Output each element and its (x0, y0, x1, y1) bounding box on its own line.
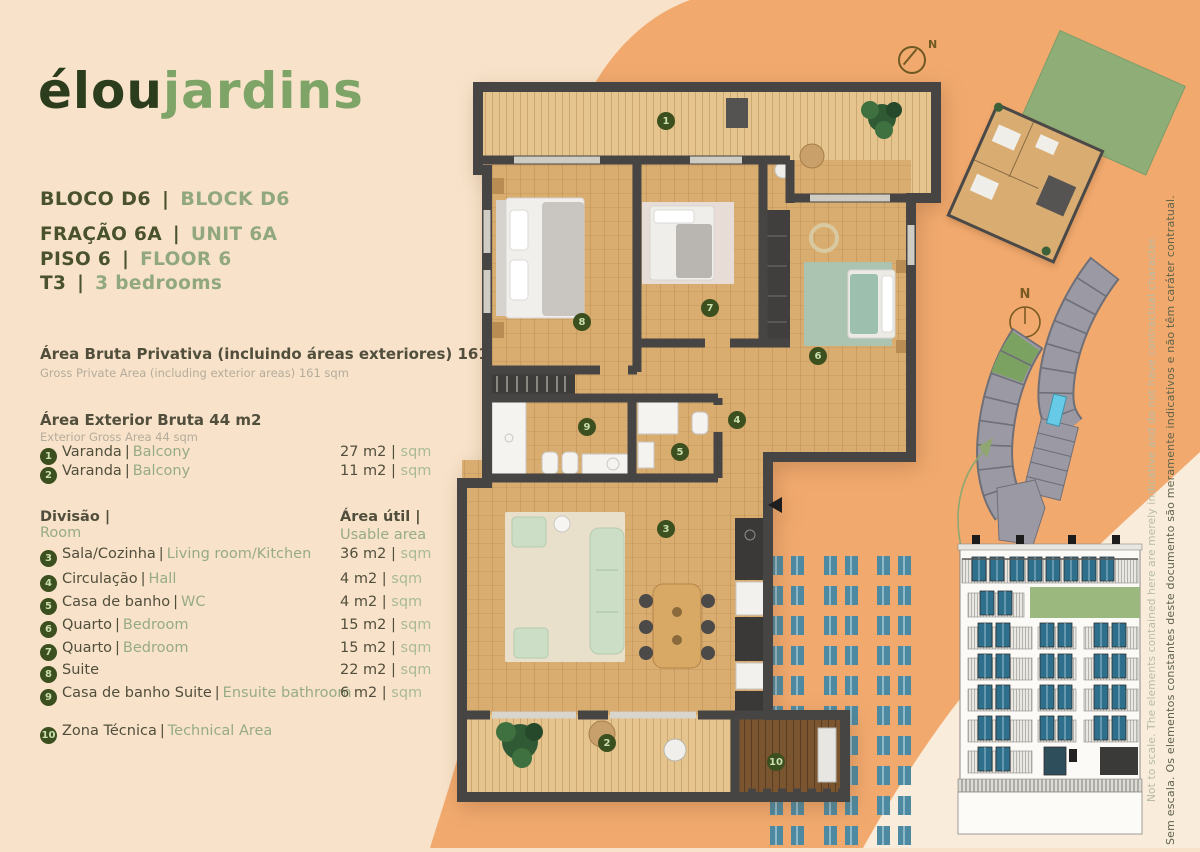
item-number-badge: 8 (40, 666, 57, 683)
separator: | (391, 546, 396, 562)
room-name-pt: Quarto (62, 640, 112, 656)
separator: | (212, 685, 223, 701)
separator: | (382, 594, 387, 610)
separator: | (382, 571, 387, 587)
separator: | (122, 444, 133, 460)
room-name-en: Hall (149, 571, 177, 587)
type-pt: T3 (40, 273, 66, 294)
bed-shape (970, 174, 999, 200)
room-name-pt: Suite (62, 662, 99, 678)
separator: | (138, 571, 149, 587)
separator (99, 662, 105, 678)
dining-chair (701, 620, 715, 634)
fence-strip (958, 779, 1142, 792)
disclaimer-pt: Sem escala. Os elementos constantes dest… (1164, 300, 1177, 845)
table-row: 9Casa de banho Suite|Ensuite bathroom6 m… (40, 685, 470, 705)
item-number-badge: 3 (40, 550, 57, 567)
separator: | (118, 249, 133, 270)
bedroom7-blanket (676, 224, 712, 278)
unit-pt: FRAÇÃO 6A (40, 224, 162, 245)
room-area-unit: sqm (401, 662, 432, 678)
dining-chair (639, 594, 653, 608)
separator: | (158, 188, 173, 210)
room-area: 36 m2 (340, 546, 386, 562)
separator: | (382, 685, 387, 701)
item-unit: sqm (401, 463, 432, 479)
vanity (582, 454, 628, 475)
gross-private-area-en: Gross Private Area (including exterior a… (40, 366, 349, 380)
item-number-badge: 4 (40, 575, 57, 592)
facade-window (770, 826, 783, 845)
dining-chair (701, 594, 715, 608)
exterior-area-pt: Área Exterior Bruta 44 m2 (40, 411, 261, 429)
room-name-pt: Zona Técnica (62, 723, 157, 739)
item-number-badge: 5 (40, 598, 57, 615)
roof-plan-thumbnail (985, 40, 1150, 255)
facade-window (898, 826, 911, 845)
item-unit: sqm (401, 444, 432, 460)
bidet (562, 452, 578, 474)
separator: | (156, 546, 167, 562)
exterior-area-en: Exterior Gross Area 44 sqm (40, 430, 198, 444)
dining-table (653, 584, 701, 668)
facade-window (791, 826, 804, 845)
exterior-item-row: 2Varanda|Balcony 11 m2 | sqm (40, 463, 470, 483)
bedroom7-pillow (654, 210, 694, 223)
table-row: 6Quarto|Bedroom15 m2 | sqm (40, 617, 470, 637)
sofa (590, 528, 624, 654)
north-label: N (1020, 287, 1031, 302)
room-area: 15 m2 (340, 640, 386, 656)
suite-pillow (510, 210, 528, 250)
room-area-unit: sqm (401, 617, 432, 633)
dining-chair (639, 646, 653, 660)
room-area: 22 m2 (340, 662, 386, 678)
kitchen-appliance (736, 663, 764, 689)
room-name-pt: Quarto (62, 617, 112, 633)
item-name-en: Balcony (133, 463, 190, 479)
radiator-unit (487, 372, 575, 396)
north-label: N (928, 38, 937, 51)
separator: | (391, 444, 396, 460)
rattan-pouf (589, 721, 615, 747)
nightstand (490, 322, 504, 338)
chimneys (972, 535, 1120, 544)
floor-en: FLOOR 6 (140, 249, 232, 270)
entrance-door (1044, 747, 1066, 775)
room-name-pt: Casa de banho Suite (62, 685, 212, 701)
room-name-pt: Casa de banho (62, 594, 170, 610)
room-area: 4 m2 (340, 571, 377, 587)
type-heading: T3 | 3 bedrooms (40, 273, 222, 294)
sink-unit (638, 442, 654, 468)
room-name-pt: Sala/Cozinha (62, 546, 156, 562)
room-area-unit: sqm (401, 640, 432, 656)
table-row: 7Quarto|Bedroom15 m2 | sqm (40, 640, 470, 660)
bed-shape (992, 124, 1021, 150)
separator: | (112, 617, 123, 633)
unit-floor (968, 587, 1140, 618)
separator: | (157, 723, 168, 739)
type-en: 3 bedrooms (95, 273, 222, 294)
unit-highlight-green (1030, 587, 1140, 618)
garage-opening (1100, 747, 1138, 775)
facade-window (877, 826, 890, 845)
plant-dot (993, 101, 1005, 113)
room-name-pt: Circulação (62, 571, 138, 587)
room-area: 6 m2 (340, 685, 377, 701)
unit-en: UNIT 6A (191, 224, 277, 245)
room-name-en: WC (181, 594, 205, 610)
unit-heading: FRAÇÃO 6A | UNIT 6A (40, 224, 277, 245)
col-area-pt: Área útil | (340, 509, 421, 525)
kitchen-fridge (736, 582, 764, 615)
kitchen-counter (735, 518, 765, 580)
item-name-pt: Varanda (62, 463, 122, 479)
balcony-table (664, 739, 686, 761)
ottoman (514, 628, 548, 658)
balcony-1-deck (478, 87, 936, 165)
room-area-unit: sqm (391, 594, 422, 610)
item-name-en: Balcony (133, 444, 190, 460)
block-pt: BLOCO D6 (40, 188, 151, 210)
room-name-en: Living room/Kitchen (167, 546, 312, 562)
table-row: 5Casa de banho|WC4 m2 | sqm (40, 594, 470, 614)
side-table (554, 516, 570, 532)
room-area-unit: sqm (391, 571, 422, 587)
room-area: 15 m2 (340, 617, 386, 633)
separator: | (112, 640, 123, 656)
separator: | (391, 640, 396, 656)
kitchen-counter (735, 691, 765, 713)
gross-private-area-pt: Área Bruta Privativa (incluindo áreas ex… (40, 345, 520, 363)
item-value: 27 m2 (340, 444, 386, 460)
kitchen-counter (735, 617, 765, 661)
floor-heading: PISO 6 | FLOOR 6 (40, 249, 232, 270)
brochure-page: { "colors": { "background": "#f8e3ca", "… (0, 0, 1200, 848)
dining-chair (639, 620, 653, 634)
item-number-badge: 2 (40, 467, 57, 484)
toilet (542, 452, 558, 474)
facade-window (824, 826, 837, 845)
nightstand (490, 178, 504, 194)
table-decor (672, 607, 682, 617)
technical-unit (818, 728, 836, 782)
doorbell-panel (1069, 749, 1077, 762)
separator: | (73, 273, 88, 294)
separator: | (169, 224, 184, 245)
room-name-en: Bedroom (123, 640, 189, 656)
logo: éloujardins (38, 62, 364, 120)
room-name-en: Bedroom (123, 617, 189, 633)
table-row: 3Sala/Cozinha|Living room/Kitchen36 m2 |… (40, 546, 470, 566)
site-plan: N (955, 250, 1155, 570)
stair-core-shape (1036, 175, 1076, 216)
exterior-item-row: 1Varanda|Balcony 27 m2 | sqm (40, 444, 470, 464)
block-en: BLOCK D6 (180, 188, 290, 210)
room-area-unit: sqm (391, 685, 422, 701)
table-header: Divisão | Room Área útil | Usable area (40, 509, 470, 541)
room-name-en: Technical Area (168, 723, 273, 739)
suite-bed-headboard (496, 200, 506, 316)
base-wall (958, 792, 1142, 834)
item-number-badge: 9 (40, 689, 57, 706)
block-heading: BLOCO D6 | BLOCK D6 (40, 188, 290, 210)
balcony-mat (726, 98, 748, 128)
dining-chair (701, 646, 715, 660)
floor-plan (450, 60, 950, 805)
table-row: 4Circulação|Hall4 m2 | sqm (40, 571, 470, 591)
toilet (692, 412, 708, 434)
roof-slab (958, 544, 1142, 550)
bedroom6-pillow (882, 276, 893, 332)
item-number-badge: 10 (40, 727, 57, 744)
shower (638, 402, 678, 434)
suite-pillow (510, 260, 528, 300)
col-area-en: Usable area (340, 527, 426, 543)
ottoman (512, 517, 546, 547)
room-area-unit: sqm (401, 546, 432, 562)
item-number-badge: 6 (40, 621, 57, 638)
ground-floor (968, 747, 1138, 775)
room-name-en: Ensuite bathroom (223, 685, 352, 701)
attic-floor (962, 557, 1138, 583)
separator: | (122, 463, 133, 479)
separator: | (170, 594, 181, 610)
item-value: 11 m2 (340, 463, 386, 479)
bed-shape (1035, 134, 1059, 155)
facade-window (845, 826, 858, 845)
table-decor (672, 635, 682, 645)
shower (492, 402, 526, 474)
floor-pt: PISO 6 (40, 249, 111, 270)
item-name-pt: Varanda (62, 444, 122, 460)
building-elevation (952, 533, 1152, 848)
table-row: 10Zona Técnica|Technical Area (40, 723, 470, 743)
logo-part-elou: élou (38, 62, 163, 120)
separator: | (391, 617, 396, 633)
separator: | (391, 662, 396, 678)
rattan-chair (800, 144, 824, 168)
table-row: 8Suite22 m2 | sqm (40, 662, 470, 682)
bedroom6-blanket (850, 274, 878, 334)
separator: | (391, 463, 396, 479)
room-area: 4 m2 (340, 594, 377, 610)
suite-blanket (542, 202, 584, 316)
item-number-badge: 7 (40, 644, 57, 661)
logo-part-jardins: jardins (163, 62, 364, 120)
